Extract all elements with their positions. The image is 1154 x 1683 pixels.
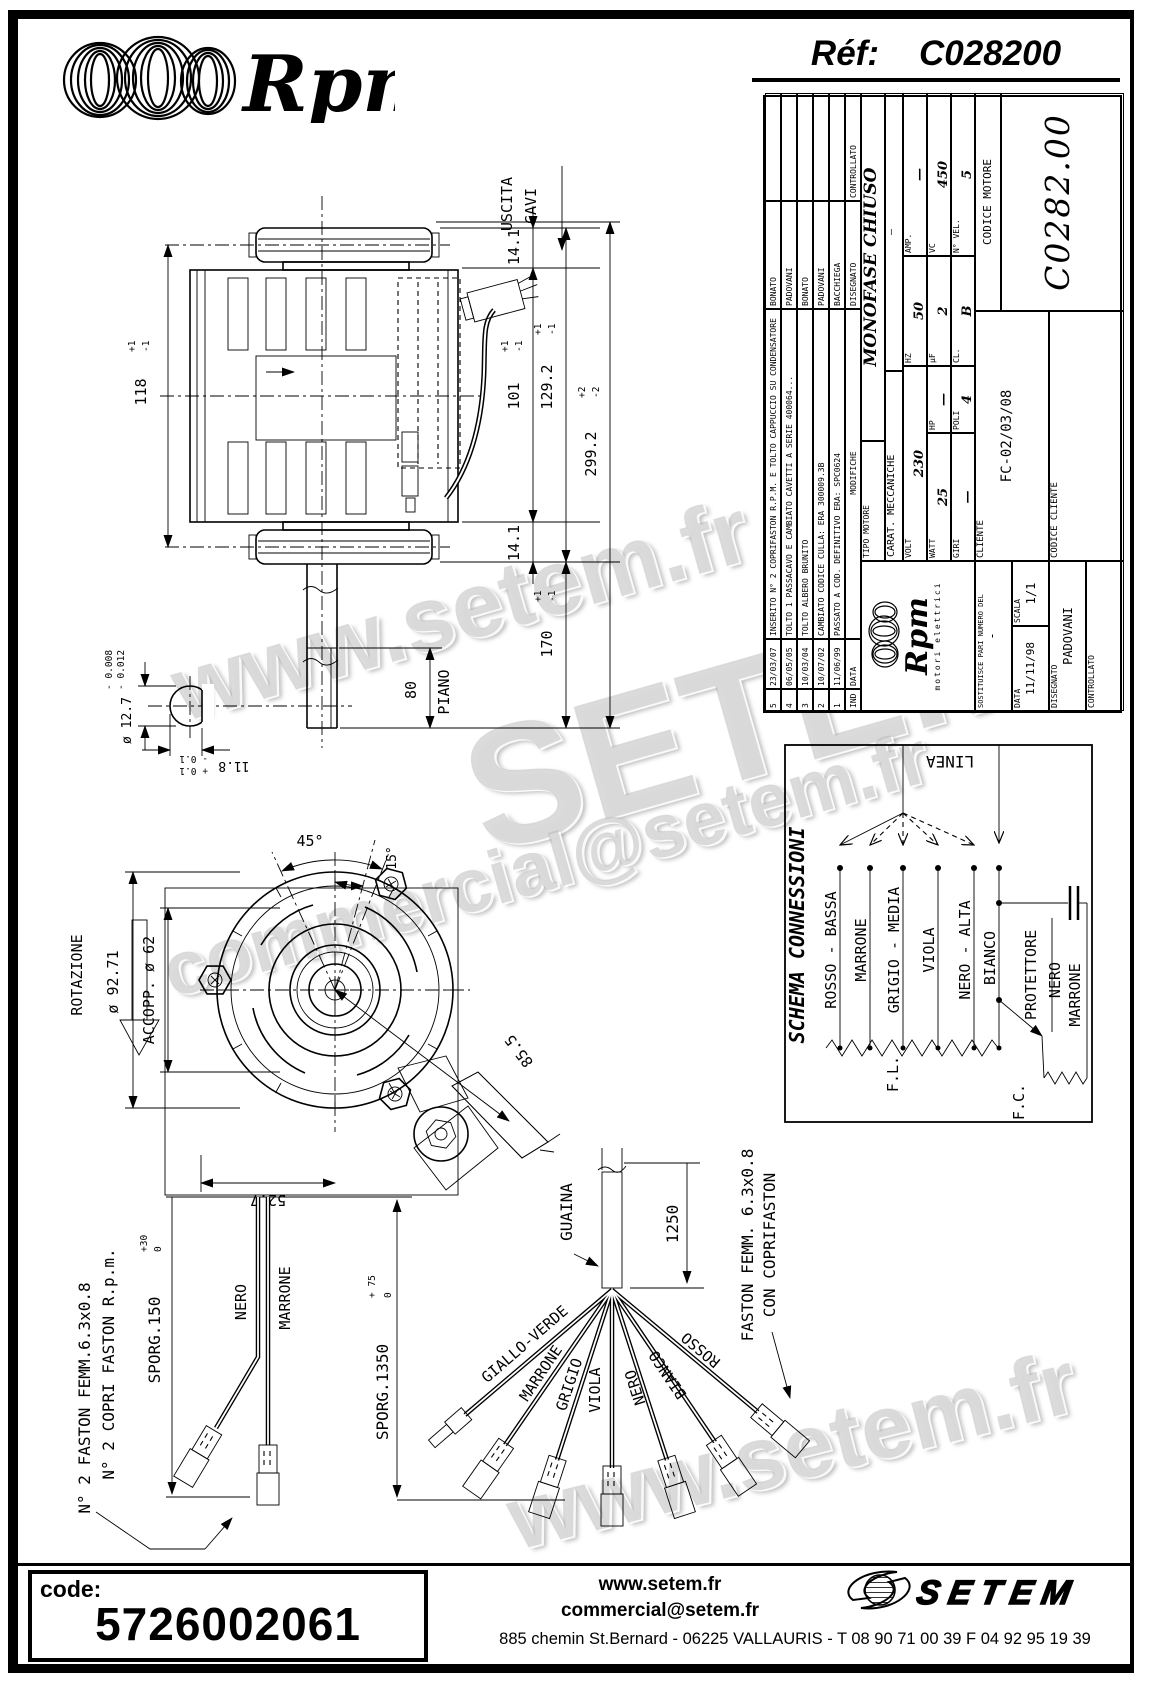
uf-value: 2	[937, 257, 951, 365]
angle-15: 15°	[385, 846, 400, 869]
rev-name: BONATO	[797, 201, 813, 309]
motor-front-view	[165, 840, 560, 1195]
dim-127-t1: - 0.008	[104, 650, 115, 690]
schema-nero: NERO	[1046, 962, 1064, 998]
ref-value: C028200	[919, 34, 1061, 74]
hz-label: HZ	[905, 353, 914, 363]
setem-logo-text: SETEM	[914, 1574, 1083, 1612]
spec-volt: VOLT230	[903, 366, 927, 561]
schema-protettore: PROTETTORE	[1022, 930, 1040, 1020]
rev-desc: CAMBIATO CODICE CULLA: ERA 300009.3B	[813, 309, 829, 639]
rev-h-data: DATA	[845, 639, 861, 689]
spec-poli: POLI4	[951, 366, 975, 433]
rev-name: BONATO	[765, 201, 781, 309]
footer-address: 885 chemin St.Bernard - 06225 VALLAURIS …	[450, 1630, 1140, 1649]
data-label: DATA	[1014, 689, 1023, 708]
spec-amp: AMP.—	[903, 93, 927, 256]
tb-carat-value-cell: —	[885, 93, 903, 371]
frame-left	[8, 10, 18, 1672]
spec-vc: VC450	[927, 93, 951, 256]
bundle-faston-note-1: FASTON FEMM. 6.3x0.8	[738, 1149, 757, 1342]
scala-label: SCALA	[1014, 599, 1023, 623]
tb-codice-motore-value: C0282.00	[1001, 93, 1124, 311]
disegnato-label: DISEGNATO	[1051, 665, 1060, 708]
tb-controllato: CONTROLLATO	[1086, 561, 1124, 711]
left-faston-detail: NERO MARRONE SPORG.150 +30 0 N° 2 FASTON…	[75, 1197, 412, 1549]
faston-note-2: N° 2 COPRI FASTON R.p.m.	[99, 1248, 118, 1479]
dim-118s: 11.8	[218, 758, 249, 773]
linea-label: LINEA	[926, 752, 975, 771]
tb-disegnato: DISEGNATO PADOVANI	[1049, 561, 1086, 711]
hz-value: 50	[913, 257, 927, 365]
dim-118-tp: +1	[127, 340, 138, 352]
tb-coil-icon	[868, 596, 902, 676]
tb-data: DATA 11/11/98	[1012, 626, 1049, 711]
codice-motore-value: C0282.00	[1040, 94, 1076, 310]
cl-value: B	[961, 257, 975, 365]
bundle-faston-note-2: CON COPRIFASTON	[760, 1173, 779, 1318]
schema-wire-bianco: BIANCO	[981, 931, 999, 985]
sporg-1350: SPORG.1350	[373, 1344, 392, 1440]
tb-brand-sub: motori elettrici	[934, 562, 943, 710]
dim-855: 85.5	[501, 1031, 537, 1071]
schema-wire-grigio: GRIGIO - MEDIA	[885, 887, 903, 1013]
watt-value: 25	[937, 434, 951, 560]
spec-cl: CL.B	[951, 256, 975, 366]
rev-date: 10/03/04	[797, 639, 813, 689]
spec-hp: HP—	[927, 366, 951, 433]
motor-side-view: USCITA CAVI	[160, 166, 562, 748]
amp-label: AMP.	[905, 234, 914, 253]
schema-wire-rosso: ROSSO - BASSA	[822, 891, 840, 1008]
rev-date: 23/03/07	[765, 639, 781, 689]
volt-value: 230	[913, 367, 927, 560]
frame-right	[1130, 10, 1134, 1672]
schema-title: SCHEMA CONNESSIONI	[785, 827, 809, 1044]
rev-h-disegnato: DISEGNATO	[845, 201, 861, 309]
dim-141-bottom: 14.1	[505, 525, 523, 561]
dim-1250: 1250	[663, 1205, 682, 1244]
rev-date: 11/06/99	[829, 639, 845, 689]
hp-label: HP	[929, 420, 938, 430]
cable-clamp	[398, 1056, 560, 1190]
sporg-150-tp: +30	[139, 1235, 150, 1252]
faston-note-1: N° 2 FASTON FEMM.6.3x0.8	[75, 1282, 94, 1513]
footer-web[interactable]: www.setem.fr	[455, 1572, 865, 1598]
dim-80: 80	[402, 681, 420, 699]
dim-141-top: 14.1	[505, 229, 523, 265]
dim-170: 170	[538, 630, 556, 657]
tb-sostituisce: SOSTITUISCE PARI NUMERO DEL -	[975, 561, 1012, 711]
dim-101-tp: +1	[500, 340, 511, 352]
tb-cliente: CLIENTE FC-02/03/08	[975, 311, 1049, 561]
dim-101-tm: -1	[514, 340, 525, 352]
title-block: 523/03/07INSERITO N° 2 COPRIFASTON R.P.M…	[763, 95, 1122, 713]
hp-value: —	[937, 367, 951, 432]
dim-accopp: ACCOPP. ø 62	[140, 936, 158, 1044]
rpm-logo-text: Rpm	[241, 39, 395, 123]
watt-label: WATT	[929, 539, 938, 558]
setem-swoosh-icon	[848, 1571, 909, 1608]
schema-marrone-2: MARRONE	[1066, 963, 1084, 1026]
bundle-bianco: BIANCO	[645, 1347, 690, 1402]
frame-top	[8, 10, 1134, 19]
side-view-dimensions: 118 +1 -1 14.1 101 +1 -1 14.1 129.2	[127, 206, 620, 728]
ref-block: Réf: C028200	[752, 34, 1120, 82]
angle-45: 45°	[296, 832, 323, 850]
tb-brand: Rpm	[901, 562, 934, 710]
cable-faston	[459, 275, 542, 324]
rev-contr	[765, 93, 781, 201]
sporg-1350-tp: + 75	[367, 1275, 378, 1298]
left-marrone-label: MARRONE	[276, 1266, 294, 1329]
rev-desc: INSERITO N° 2 COPRIFASTON R.P.M. E TOLTO…	[765, 309, 781, 639]
code-value: 5726002061	[32, 1597, 424, 1651]
nvel-label: N° VEL.	[953, 219, 962, 253]
rev-date: 10/07/02	[813, 639, 829, 689]
rev-ind: 3	[797, 689, 813, 711]
sporg-150: SPORG.150	[145, 1297, 164, 1384]
dim-118: 118	[132, 378, 150, 405]
tipo-value: MONOFASE CHIUSO	[862, 94, 881, 440]
tb-logo-cell: Rpm motori elettrici	[861, 561, 975, 711]
tb-tipo-value-cell: MONOFASE CHIUSO	[861, 93, 885, 441]
carat-label: CARAT. MECCANICHE	[886, 455, 897, 560]
dim-1292-tp: +1	[533, 323, 544, 335]
tb-codice-motore-label: CODICE MOTORE	[975, 93, 1001, 311]
rpm-logo: Rpm	[25, 18, 395, 123]
tb-codice-cliente: CODICE CLIENTE	[1049, 311, 1124, 561]
coil-icon	[64, 37, 235, 119]
bundle-wires	[465, 1290, 758, 1468]
rev-name: BACCHIEGA	[829, 201, 845, 309]
volt-label: VOLT	[905, 539, 914, 558]
sporg-1350-tm: 0	[383, 1292, 394, 1298]
uf-label: μF	[929, 353, 938, 363]
spec-nvel: N° VEL.5	[951, 93, 975, 256]
cliente-value: FC-02/03/08	[1000, 312, 1015, 560]
giri-label: GIRI	[953, 539, 962, 558]
frame-bottom	[8, 1664, 1134, 1673]
dim-118-tm: -1	[141, 340, 152, 352]
ref-label: Réf:	[811, 34, 879, 74]
schema-connessioni: SCHEMA CONNESSIONI LINEA	[785, 745, 1092, 1122]
tb-tipo-label-cell: TIPO MOTORE	[861, 441, 885, 561]
cliente-label: CLIENTE	[977, 520, 987, 558]
code-box: code: 5726002061	[28, 1570, 428, 1662]
dim-2992: 299.2	[582, 431, 600, 476]
data-value: 11/11/98	[1025, 627, 1037, 710]
drawing-page: www.setem.fr SETEM commercial@setem.fr w…	[0, 0, 1154, 1683]
rev-name: PADOVANI	[781, 201, 797, 309]
bundle-viola: VIOLA	[586, 1367, 604, 1412]
dim-127: ø 12.7	[120, 697, 135, 744]
poli-label: POLI	[953, 411, 962, 430]
rev-date: 06/05/05	[781, 639, 797, 689]
codice-cliente-label: CODICE CLIENTE	[1051, 482, 1061, 558]
amp-value: —	[913, 94, 927, 255]
rev-h-ind: IND	[845, 689, 861, 711]
rotazione-label: ROTAZIONE	[68, 934, 86, 1015]
footer-email[interactable]: commercial@setem.fr	[455, 1598, 865, 1624]
rev-contr	[829, 93, 845, 201]
rev-desc: TOLTO ALBERO BRUNITO	[797, 309, 813, 639]
rev-ind: 5	[765, 689, 781, 711]
nvel-value: 5	[961, 94, 975, 255]
spec-uf: μF2	[927, 256, 951, 366]
rev-contr	[781, 93, 797, 201]
dim-118s-tm: - 0.1	[179, 753, 208, 764]
schema-fl: F.L.	[884, 1056, 902, 1092]
uscita-cavi-label-1: USCITA	[498, 177, 516, 231]
schema-wire-nero-alta: NERO - ALTA	[956, 900, 974, 999]
left-nero-label: NERO	[232, 1284, 250, 1320]
scala-value: 1/1	[1025, 562, 1038, 625]
rev-h-modifiche: MODIFICHE	[845, 309, 861, 639]
dim-9271: ø 92.71	[104, 950, 122, 1013]
footer-links: www.setem.fr commercial@setem.fr	[455, 1572, 865, 1623]
rev-name: PADOVANI	[813, 201, 829, 309]
schema-wire-marrone: MARRONE	[852, 918, 870, 981]
vc-label: VC	[929, 243, 938, 253]
carat-value: —	[886, 229, 897, 235]
schema-wire-viola: VIOLA	[920, 927, 938, 972]
spec-giri: GIRI—	[951, 433, 975, 561]
controllato-label: CONTROLLATO	[1088, 655, 1097, 708]
dim-2992-tp: +2	[577, 387, 588, 398]
rev-ind: 1	[829, 689, 845, 711]
setem-logo: SETEM	[835, 1560, 1135, 1630]
rev-h-controllato: CONTROLLATO	[845, 93, 861, 201]
spec-hz: HZ50	[903, 256, 927, 366]
dim-118s-tp: + 0.1	[179, 765, 208, 776]
rev-contr	[813, 93, 829, 201]
poli-value: 4	[961, 367, 975, 432]
sporg-150-tm: 0	[153, 1246, 164, 1252]
dim-101: 101	[505, 382, 523, 409]
shaft-section-detail: ø 12.7 - 0.008 - 0.012 11.8 + 0.1 - 0.1	[104, 650, 352, 776]
dim-170-tp: +1	[533, 590, 544, 602]
rev-contr	[797, 93, 813, 201]
tipo-label: TIPO MOTORE	[863, 505, 872, 558]
cl-label: CL.	[953, 349, 962, 363]
codice-motore-label: CODICE MOTORE	[981, 159, 994, 245]
dim-1292: 129.2	[538, 364, 556, 409]
revision-table: 523/03/07INSERITO N° 2 COPRIFASTON R.P.M…	[765, 93, 861, 711]
rev-ind: 4	[781, 689, 797, 711]
uscita-cavi-label-2: CAVI	[522, 188, 540, 224]
piano-label: PIANO	[435, 669, 453, 714]
tb-scala: SCALA 1/1	[1012, 561, 1049, 626]
schema-fc: F.C.	[1010, 1084, 1028, 1120]
giri-value: —	[961, 434, 975, 560]
spec-watt: WATT25	[927, 433, 951, 561]
rev-ind: 2	[813, 689, 829, 711]
dim-2992-tm: -2	[591, 387, 602, 398]
dim-118s-group: 11.8 + 0.1 - 0.1	[179, 753, 250, 776]
dim-1292-tm: -1	[547, 323, 558, 335]
sostituisce-value: -	[986, 562, 999, 710]
rev-desc: TOLTO 1 PASSACAVO E CAMBIATO CAVETTI A S…	[781, 309, 797, 639]
cable-bundle: GUAINA 1250	[367, 1148, 810, 1526]
vc-value: 450	[937, 94, 951, 255]
dim-127-t2: - 0.012	[116, 650, 127, 690]
rev-desc: PASSATO A COD. DEFINITIVO ERA: SPC0624	[829, 309, 845, 639]
tb-carat-label-cell: CARAT. MECCANICHE	[885, 371, 903, 561]
guaina-label: GUAINA	[557, 1183, 576, 1241]
disegnato-value: PADOVANI	[1062, 562, 1075, 710]
bundle-giallo-verde: GIALLO-VERDE	[478, 1302, 572, 1387]
dim-170-tm: -1	[547, 590, 558, 602]
